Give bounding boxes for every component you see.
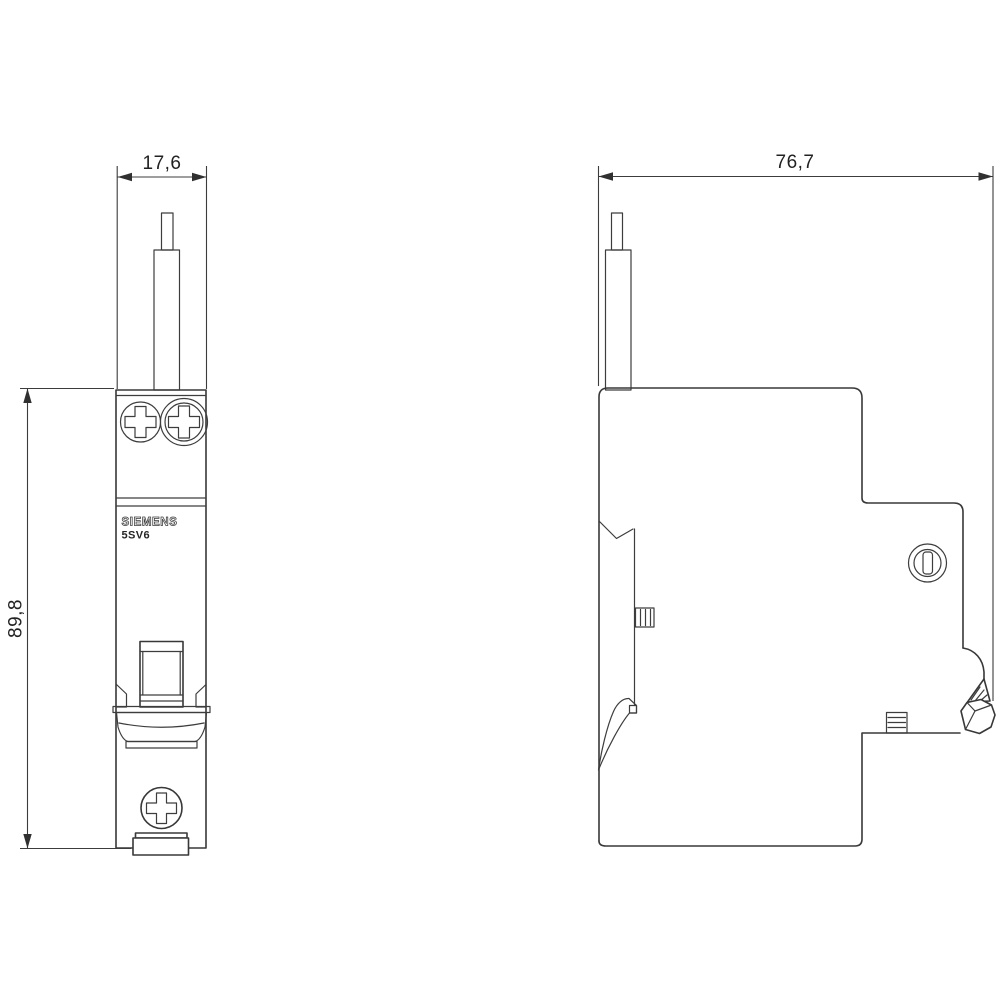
latch-slider-body <box>636 608 655 627</box>
side-pin-tip <box>612 213 623 250</box>
dimension-value: 17,6 <box>143 153 182 174</box>
brand-label: SIEMENS <box>122 517 178 529</box>
model-label: 5SV6 <box>122 530 151 542</box>
side-rail-notch <box>599 521 633 539</box>
phillips-screw-icon <box>165 403 203 441</box>
front-din-clip <box>133 833 189 855</box>
rocker-base-arc-line <box>119 723 204 727</box>
phillips-cross-icon <box>169 406 200 438</box>
arrowhead-left-icon <box>599 172 614 180</box>
slotted-screw-inner-icon <box>914 550 941 577</box>
toggle-lock-tab-left <box>117 685 127 708</box>
front-terminal-screw-right <box>161 399 208 446</box>
front-toggle-switch <box>113 642 210 749</box>
arrowhead-left-icon <box>118 173 133 181</box>
front-terminal-screw-left <box>121 402 161 442</box>
dimension-side-depth: 76,7 <box>599 152 994 701</box>
side-claw-arc <box>963 648 984 679</box>
latch-hook-tab <box>630 706 637 714</box>
rocker-bottom-strip <box>126 742 197 749</box>
technical-drawing-page: SIEMENS 5SV6 <box>0 0 1000 1000</box>
front-pin-shaft <box>154 250 180 390</box>
dimension-front-width: 17,6 <box>117 153 206 389</box>
side-rail-claw <box>961 679 995 734</box>
latch-hook-shape <box>599 698 637 770</box>
dimension-front-height: 89,8 <box>6 389 132 849</box>
screw-slot-icon <box>923 552 933 574</box>
side-latch-hook <box>599 698 637 770</box>
front-pin <box>154 213 180 390</box>
arrowhead-right-icon <box>192 173 207 181</box>
front-housing-outline <box>116 390 206 848</box>
side-latch-slider <box>636 608 655 627</box>
arrowhead-down-icon <box>23 834 31 849</box>
side-pin-shaft <box>606 250 632 390</box>
front-bottom-screw <box>141 788 182 829</box>
front-view: SIEMENS 5SV6 <box>113 213 210 855</box>
din-clip-lower <box>133 838 189 855</box>
side-housing-outline-lower <box>599 733 960 846</box>
dimension-value: 89,8 <box>6 599 27 638</box>
side-fixing-screw <box>909 544 947 582</box>
side-bottom-clip <box>887 713 908 734</box>
toggle-lock-tab-right <box>196 685 206 708</box>
phillips-screw-icon <box>121 402 161 442</box>
side-view <box>599 213 996 846</box>
side-pin <box>606 213 632 390</box>
phillips-screw-icon <box>141 788 182 829</box>
dimension-value: 76,7 <box>776 152 815 173</box>
phillips-cross-icon <box>147 793 177 824</box>
front-pin-tip <box>162 213 174 250</box>
arrowhead-up-icon <box>23 389 31 404</box>
claw-wedge <box>968 679 991 702</box>
phillips-cross-icon <box>125 407 156 438</box>
arrowhead-right-icon <box>979 172 994 180</box>
technical-drawing-canvas: SIEMENS 5SV6 <box>0 0 1000 1000</box>
